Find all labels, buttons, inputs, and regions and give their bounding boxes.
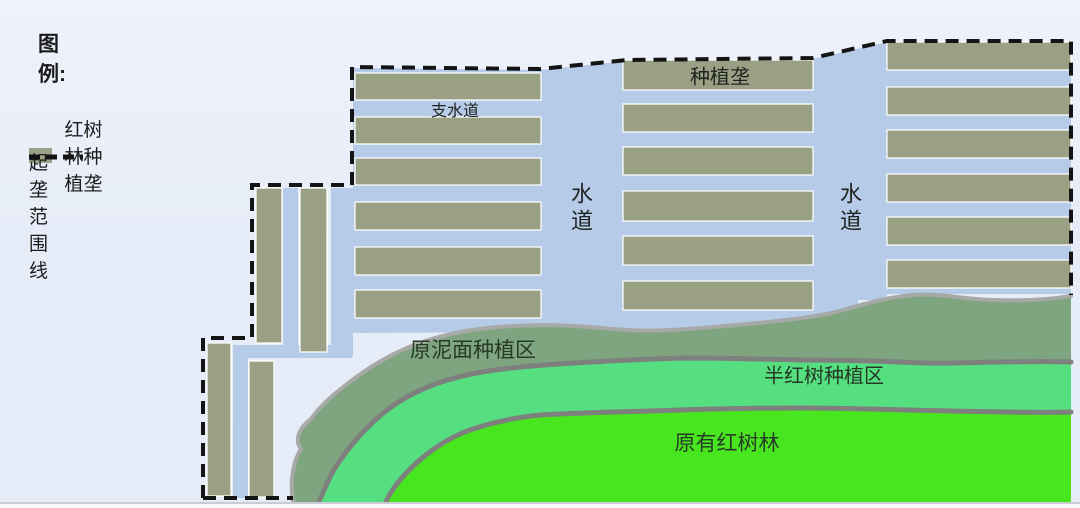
dashed-line-swatch — [29, 148, 83, 166]
ridge-bar-vertical — [300, 188, 327, 352]
upper-left-channel — [283, 188, 298, 352]
ridge-bar — [887, 42, 1071, 70]
legend-title: 图例: — [38, 28, 66, 88]
lower-left-channel — [233, 345, 248, 498]
mangrove-plan-drawing — [0, 0, 1080, 508]
ridge-bar — [623, 281, 813, 310]
ridge-bar-vertical — [249, 361, 274, 497]
planting-ridge-label: 种植垄 — [690, 61, 750, 90]
mud-surface-zone-label: 原泥面种植区 — [410, 334, 536, 364]
ridge-bar — [623, 236, 813, 265]
ridge-bar — [355, 290, 541, 318]
diagram-canvas: 图例: 红树林种植垄 起垄范围线 支水道 种植垄 水道 水道 原泥面种植区 半红… — [0, 0, 1080, 508]
branch-waterway-label: 支水道 — [431, 97, 479, 121]
ridge-bar — [887, 260, 1071, 288]
legend-item-label: 起垄范围线 — [29, 148, 48, 283]
ridge-bar — [887, 217, 1071, 245]
ridge-bar — [355, 117, 541, 144]
ridge-bar — [355, 202, 541, 230]
left-water-strip — [331, 188, 353, 356]
lower-left-channel-connector — [233, 345, 352, 358]
ridge-bar — [623, 191, 813, 221]
ridge-bar — [355, 73, 541, 100]
existing-mangrove-label: 原有红树林 — [675, 427, 780, 457]
ridge-bar — [887, 87, 1071, 115]
waterway-left-label: 水道 — [564, 182, 596, 236]
semi-mangrove-zone-label: 半红树种植区 — [764, 360, 884, 389]
ridge-bar — [887, 130, 1071, 158]
ridge-bar-vertical — [256, 188, 282, 343]
ridge-bar — [623, 147, 813, 175]
ridge-bar — [887, 174, 1071, 202]
ridge-bar — [355, 247, 541, 275]
bottom-border — [0, 503, 1080, 508]
ridge-bar — [623, 104, 813, 132]
ridge-bar — [355, 158, 541, 185]
ridge-bar-vertical — [207, 343, 231, 496]
legend-item-boundary-line: 起垄范围线 — [29, 148, 48, 283]
waterway-right-label: 水道 — [833, 182, 865, 236]
